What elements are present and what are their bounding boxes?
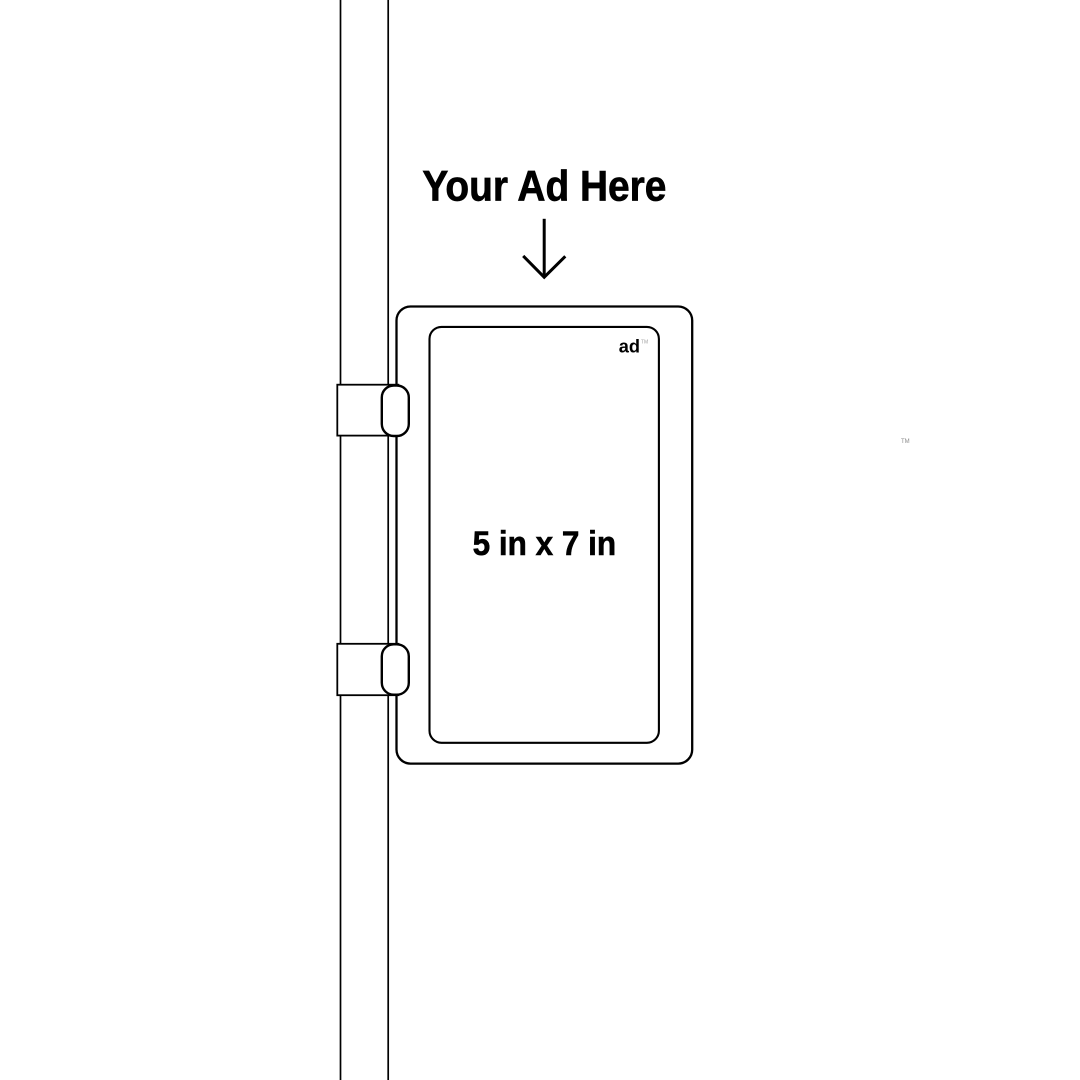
- svg-text:TM: TM: [641, 340, 648, 346]
- svg-text:5 in x 7 in: 5 in x 7 in: [473, 525, 617, 563]
- svg-text:Your Ad Here: Your Ad Here: [422, 164, 666, 211]
- svg-text:TM: TM: [901, 439, 910, 445]
- svg-text:ad: ad: [619, 337, 640, 357]
